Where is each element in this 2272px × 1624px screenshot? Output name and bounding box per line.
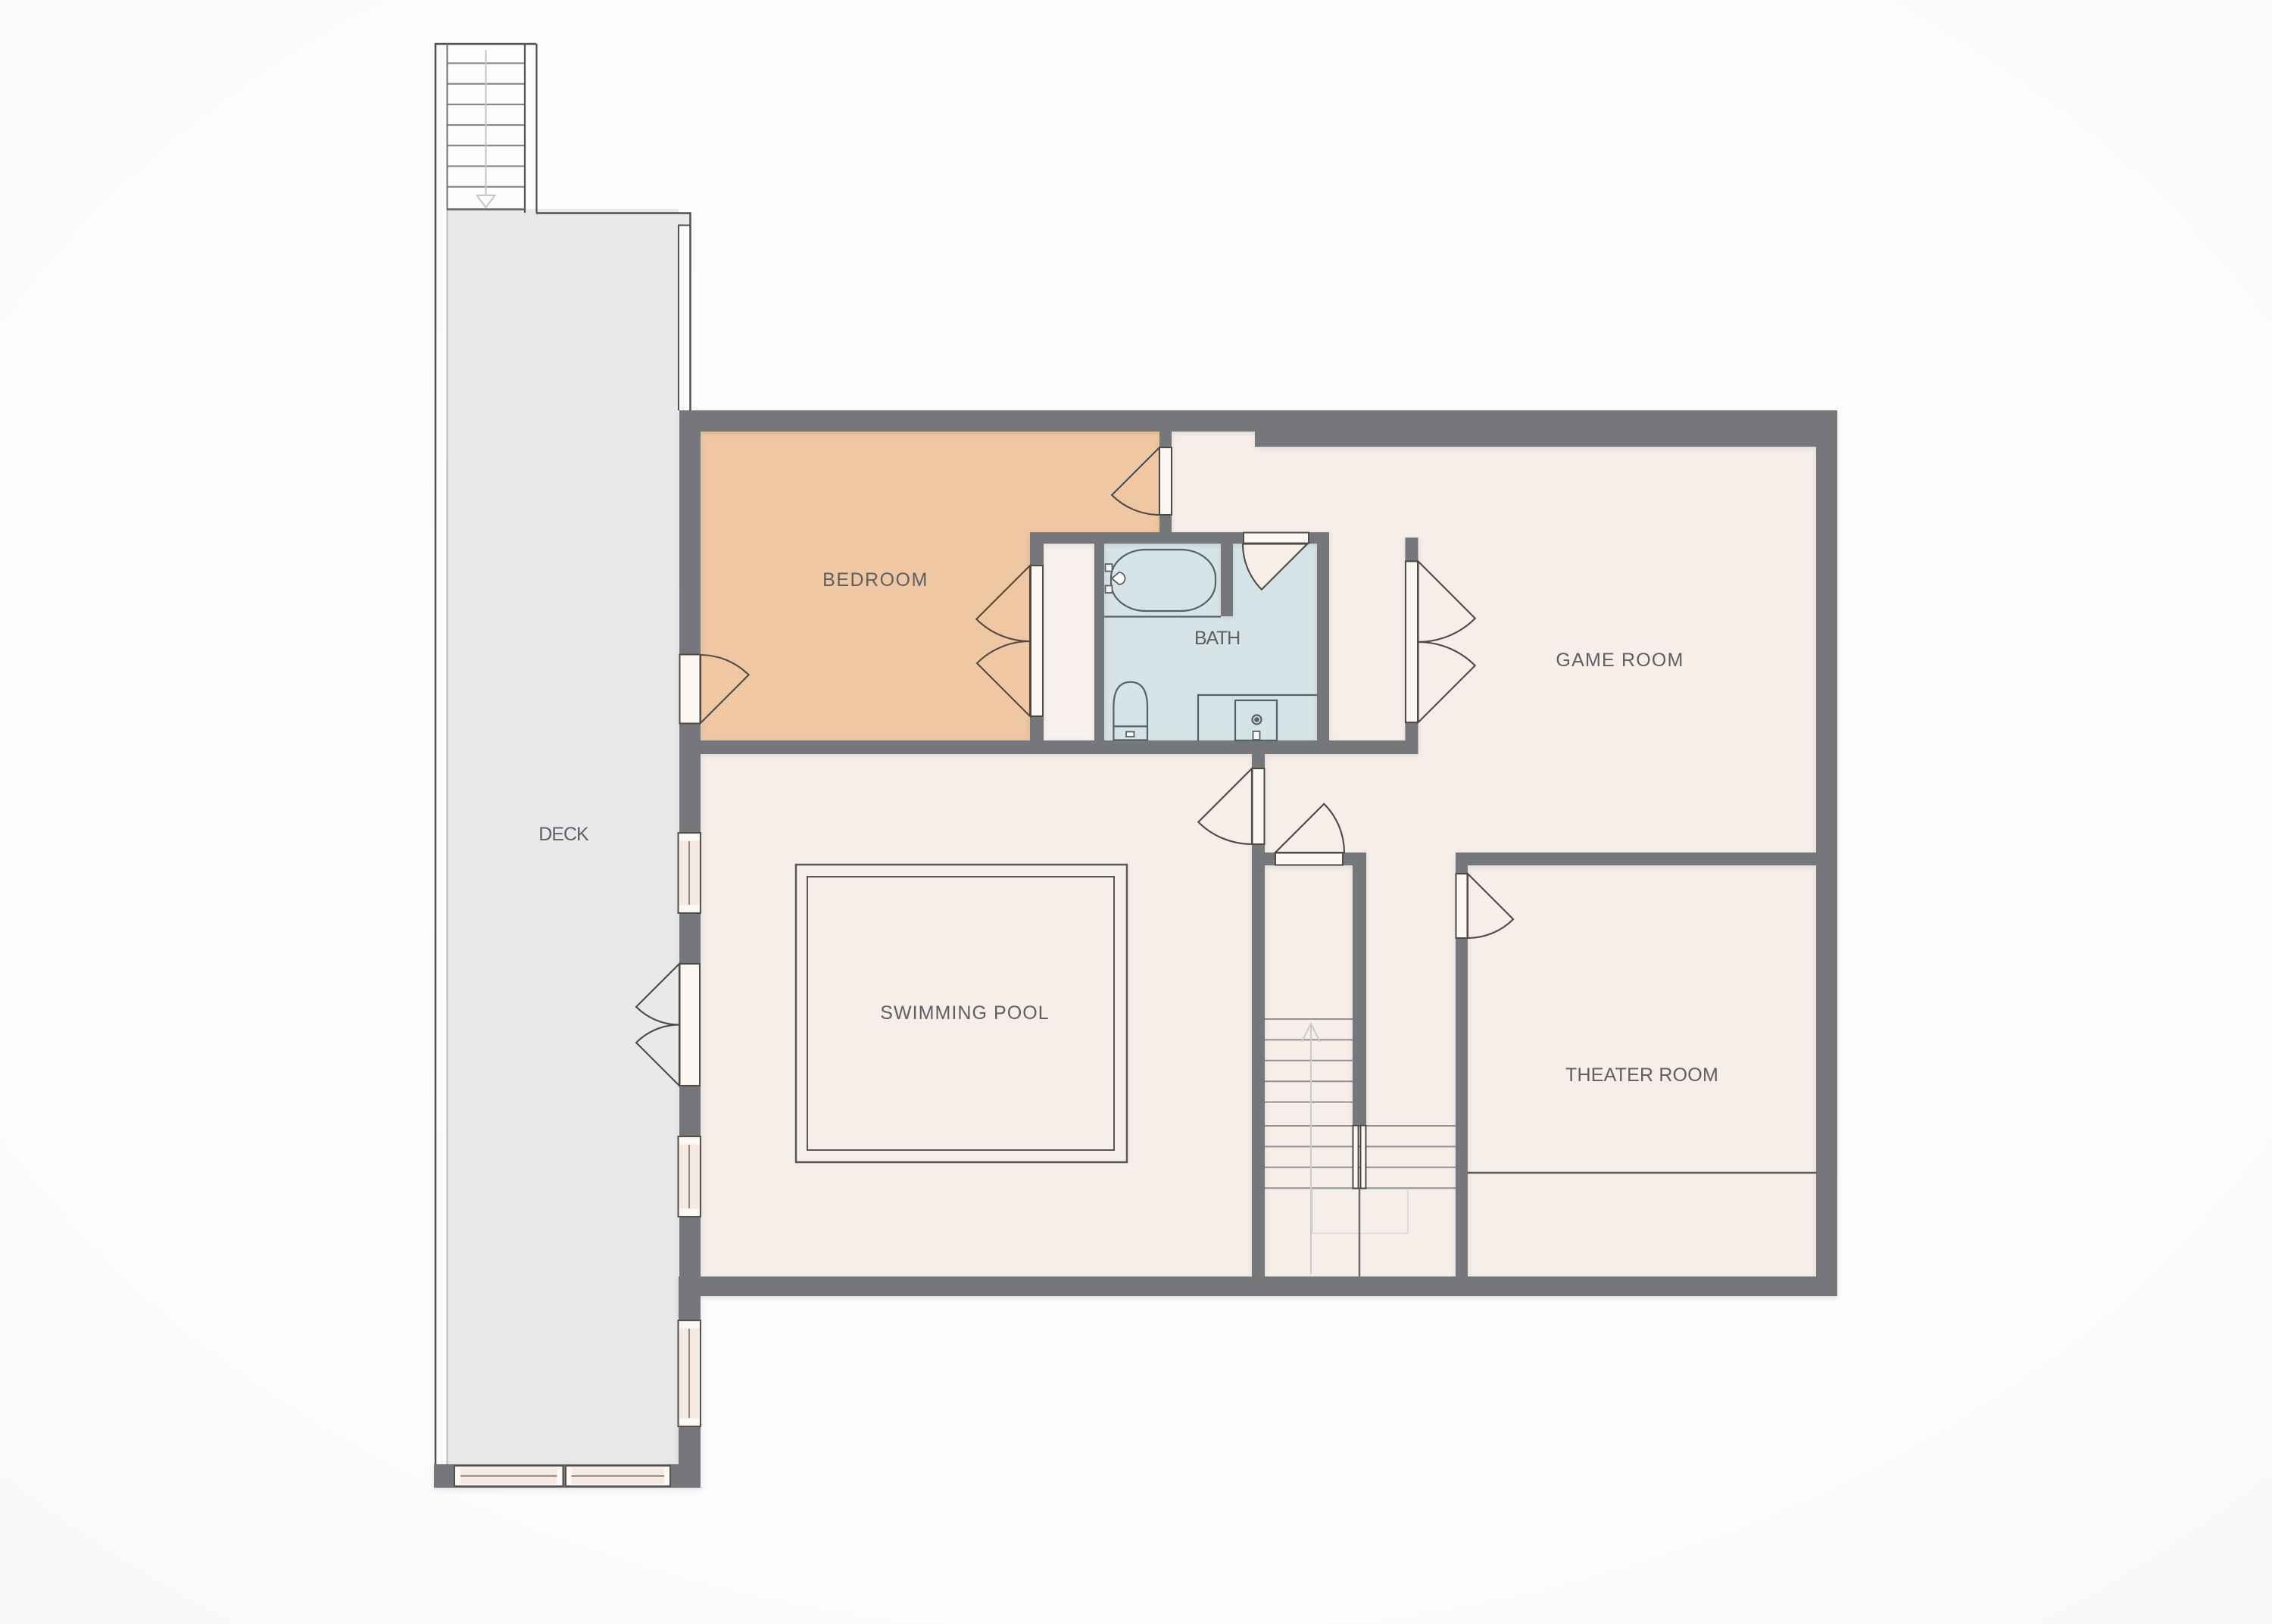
svg-text:SWIMMING POOL: SWIMMING POOL [880,1002,1049,1024]
svg-text:BATH: BATH [1194,628,1240,649]
svg-text:THEATER ROOM: THEATER ROOM [1565,1064,1718,1086]
svg-text:BEDROOM: BEDROOM [822,569,928,591]
svg-text:DECK: DECK [538,824,589,845]
svg-text:GAME ROOM: GAME ROOM [1556,650,1684,671]
